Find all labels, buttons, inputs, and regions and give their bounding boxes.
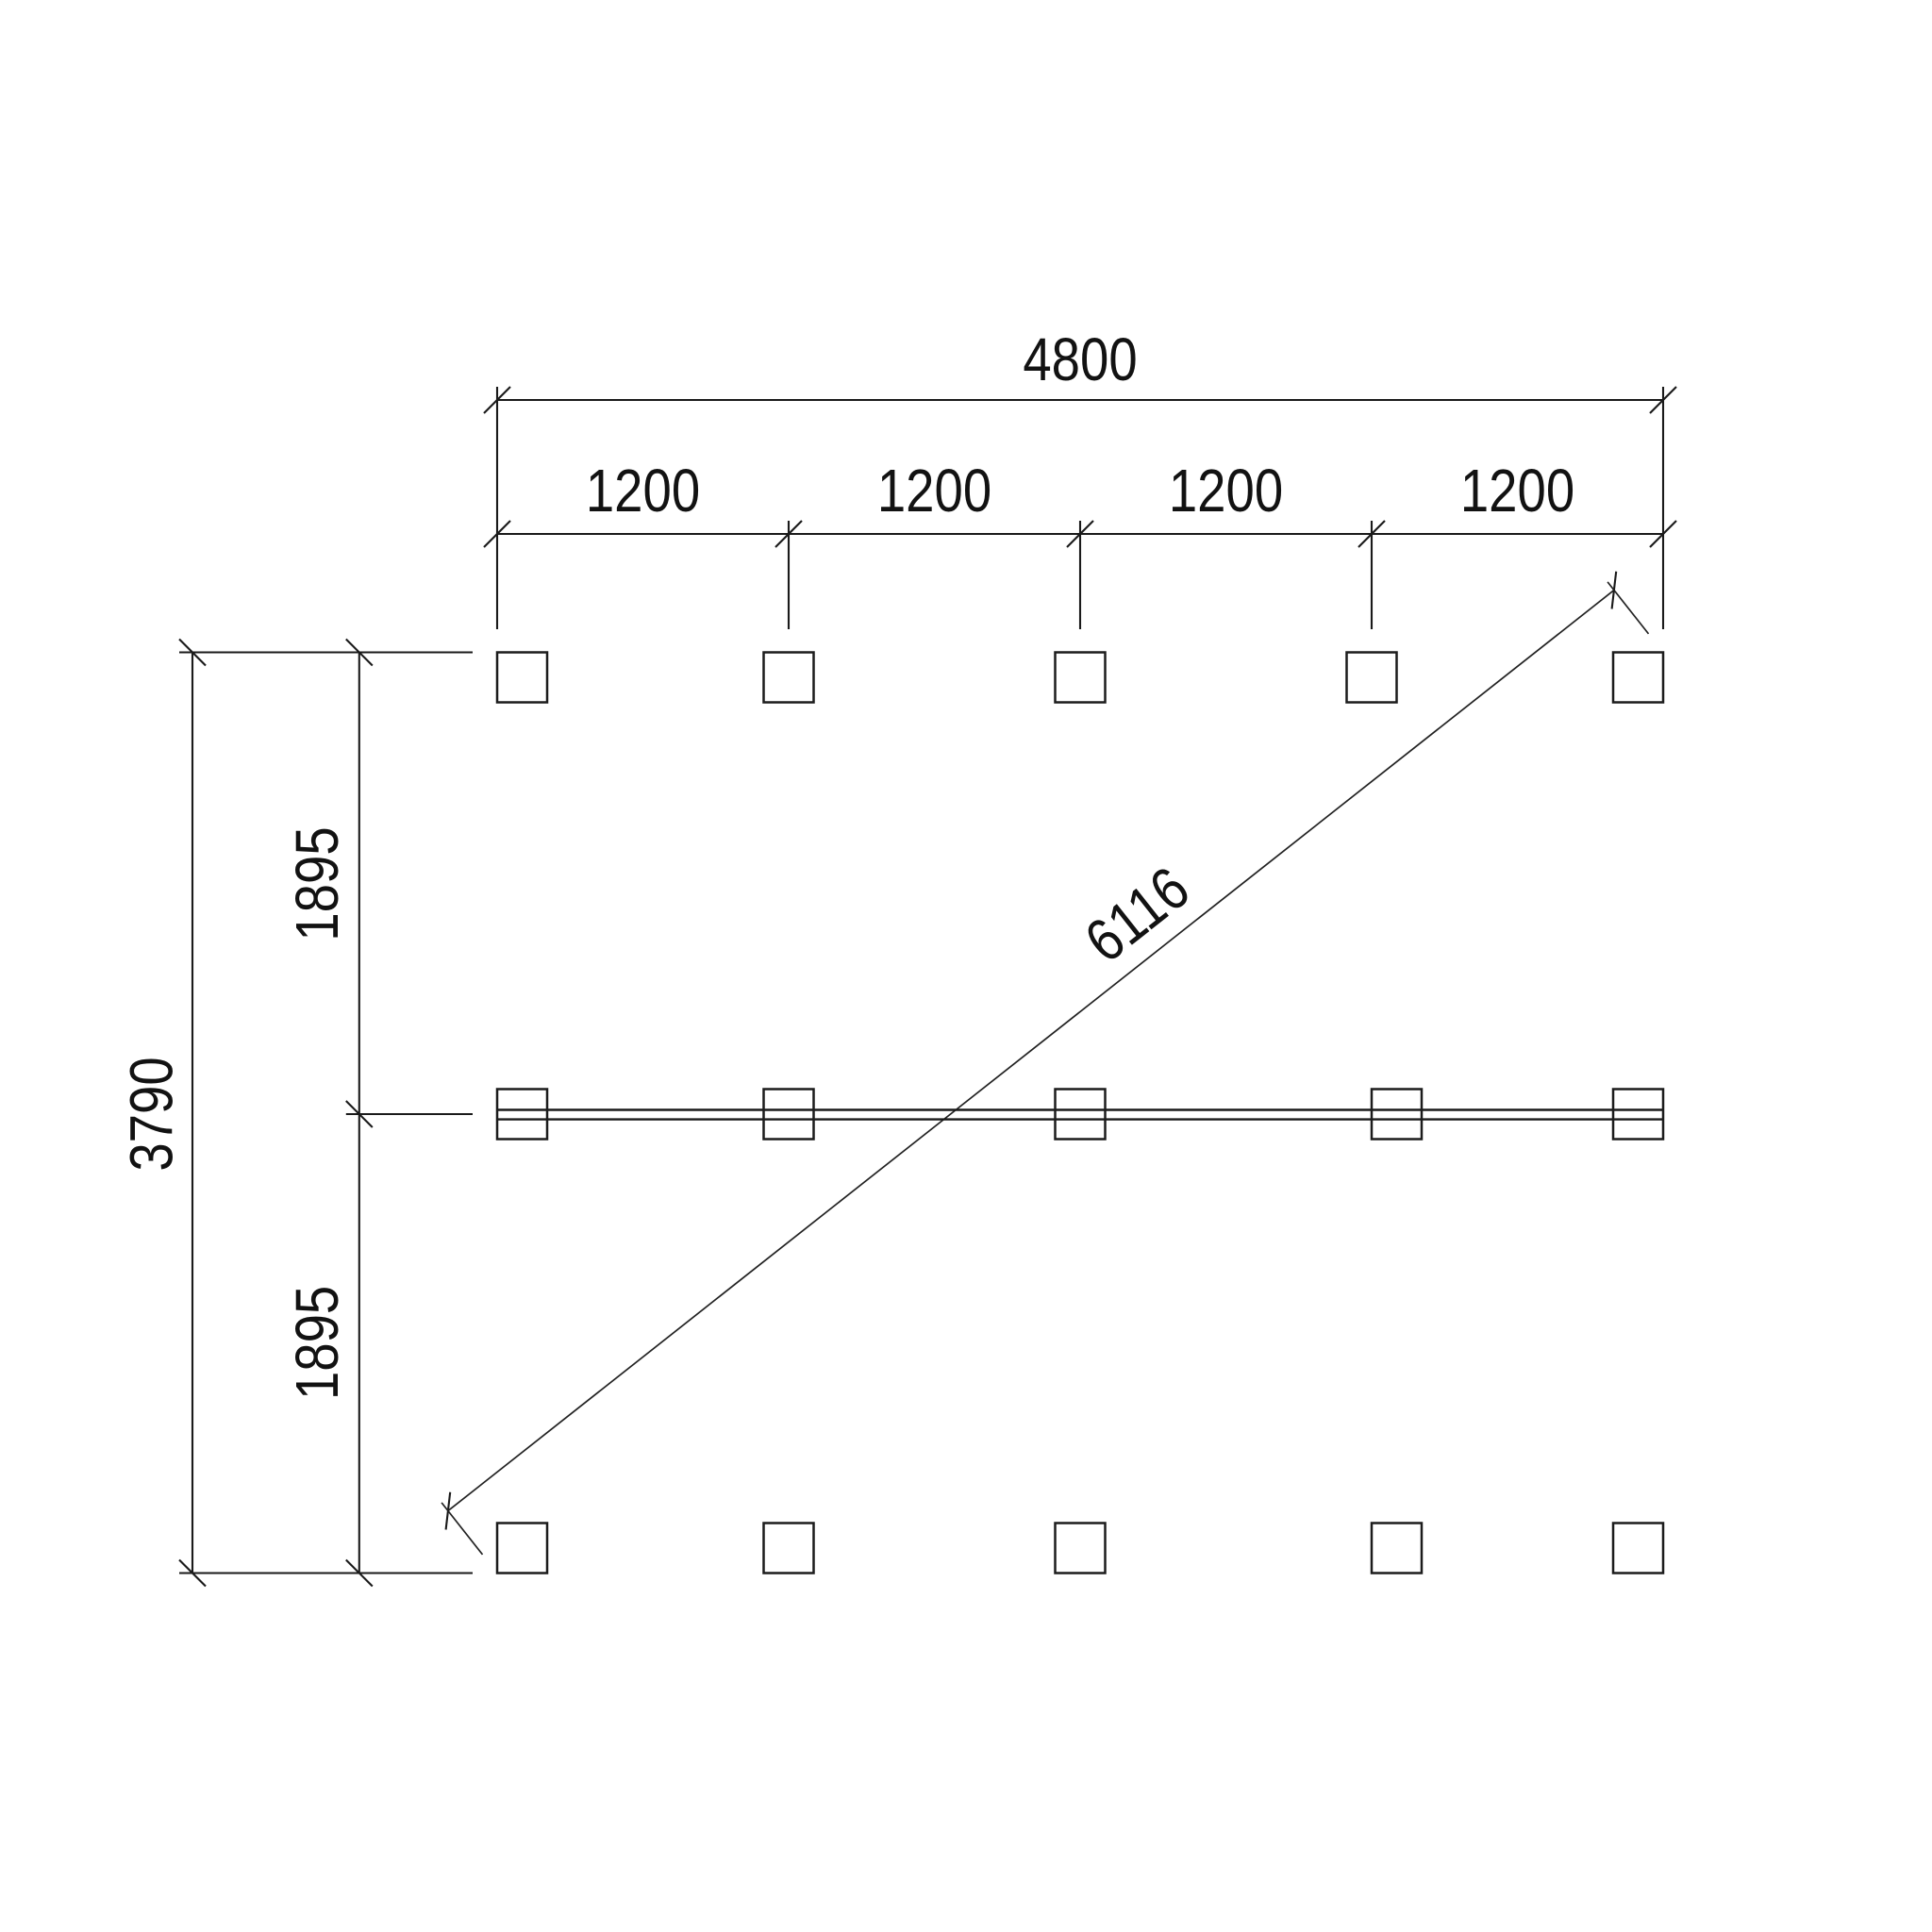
svg-text:1895: 1895 <box>283 1286 351 1400</box>
svg-text:1200: 1200 <box>1460 457 1574 525</box>
svg-text:1200: 1200 <box>586 457 700 525</box>
svg-text:1200: 1200 <box>877 457 991 525</box>
svg-text:1895: 1895 <box>283 826 351 941</box>
svg-text:4800: 4800 <box>1023 325 1137 393</box>
svg-text:1200: 1200 <box>1169 457 1283 525</box>
svg-text:3790: 3790 <box>117 1057 185 1171</box>
